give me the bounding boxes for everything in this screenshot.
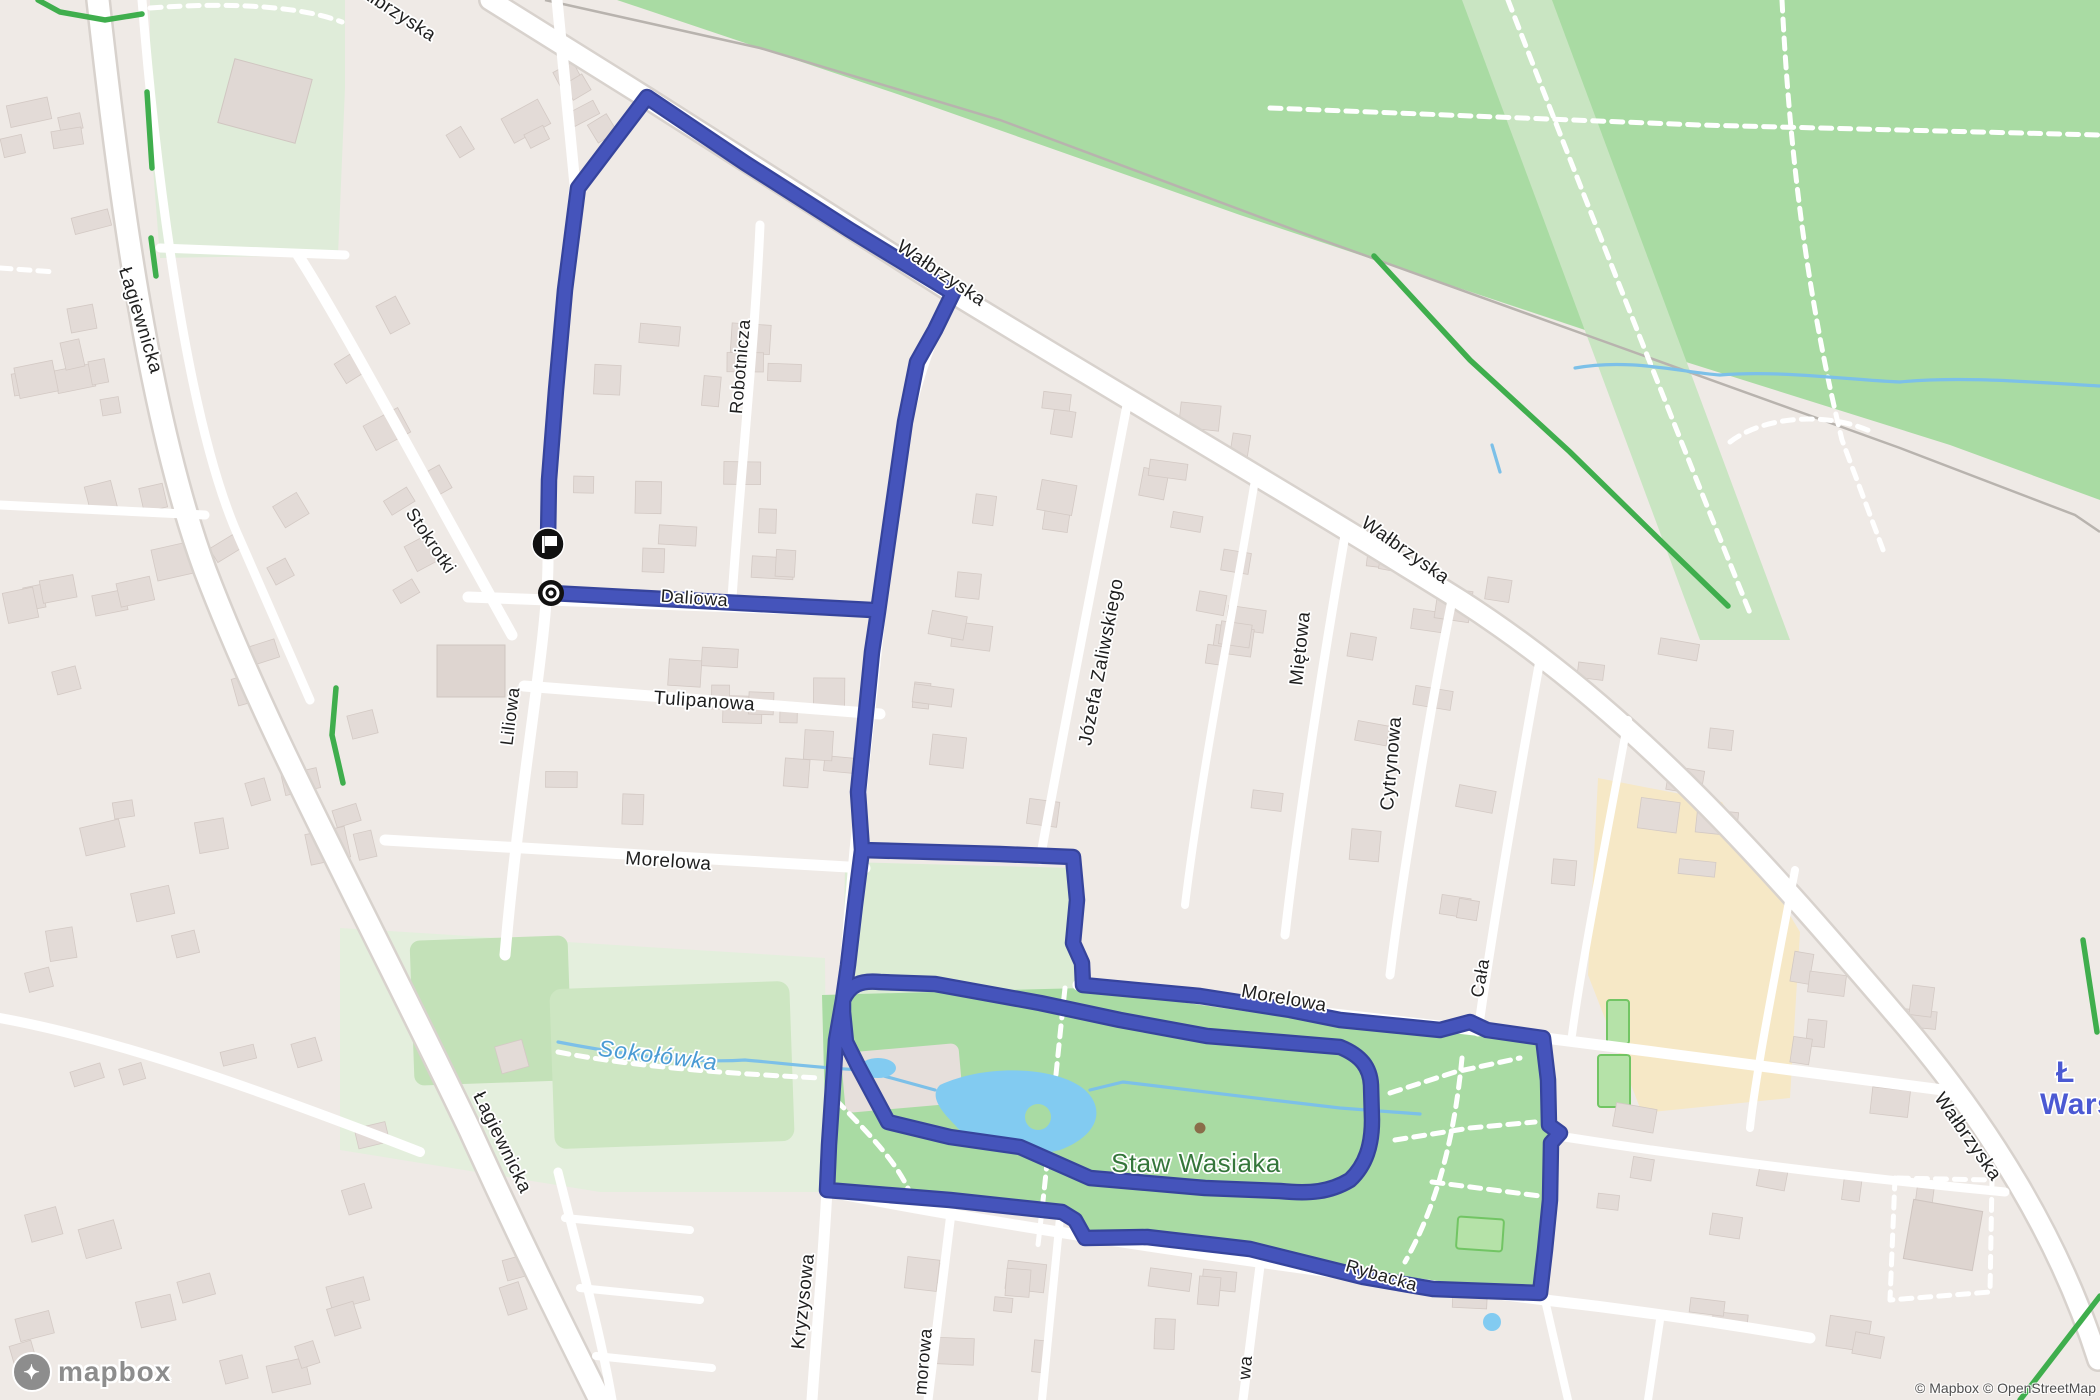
building	[1852, 1332, 1885, 1359]
mapbox-logo-text: mapbox	[58, 1356, 171, 1388]
building	[194, 818, 228, 854]
poi-dot	[1195, 1123, 1206, 1134]
place-label-line1: Ł	[2056, 1056, 2075, 1089]
building	[635, 481, 662, 513]
building	[955, 572, 981, 600]
building	[803, 730, 833, 761]
building	[171, 930, 199, 958]
building	[545, 771, 577, 787]
building	[972, 494, 996, 526]
building	[1005, 1268, 1031, 1297]
building	[593, 364, 621, 395]
building	[1485, 577, 1512, 603]
building	[1196, 591, 1227, 616]
place-label-line2: Wars	[2040, 1088, 2100, 1121]
building	[1551, 859, 1577, 886]
sports-field	[1598, 1055, 1630, 1107]
pond-island	[1025, 1104, 1051, 1130]
park-label-staw-wasiaka: Staw Wasiaka	[1111, 1148, 1281, 1178]
map-canvas[interactable]: Łagiewnicka Łagiewnicka Wałbrzyska Wałbr…	[0, 0, 2100, 1400]
school-building	[437, 645, 505, 697]
building	[783, 758, 810, 788]
building	[45, 927, 77, 962]
building	[1456, 898, 1479, 920]
mapbox-logo-icon: ✦	[12, 1352, 52, 1392]
building	[994, 1297, 1013, 1313]
sports-field	[1456, 1216, 1504, 1251]
building	[1637, 797, 1680, 833]
building	[1808, 971, 1847, 996]
building	[639, 323, 681, 346]
map-svg: Łagiewnicka Łagiewnicka Wałbrzyska Wałbr…	[0, 0, 2100, 1400]
building	[758, 509, 776, 534]
map-attribution[interactable]: © Mapbox © OpenStreetMap	[1915, 1380, 2096, 1396]
building	[573, 476, 593, 493]
building	[1870, 1087, 1911, 1118]
building	[904, 1257, 939, 1292]
building	[767, 363, 801, 381]
building	[2, 587, 39, 623]
sports-field	[1607, 1000, 1629, 1044]
building	[1903, 1199, 1982, 1270]
building	[67, 304, 97, 333]
building	[1347, 633, 1376, 660]
building	[622, 794, 644, 825]
building	[935, 1337, 974, 1365]
building	[1709, 1213, 1742, 1239]
building	[642, 548, 665, 573]
building	[1708, 728, 1733, 751]
building	[658, 525, 697, 546]
building	[1037, 479, 1077, 515]
building	[1597, 1193, 1620, 1210]
building	[1790, 1036, 1813, 1064]
start-marker[interactable]	[538, 580, 564, 606]
building	[1349, 829, 1381, 862]
building	[701, 647, 738, 668]
building	[1251, 790, 1283, 812]
finish-marker[interactable]	[532, 528, 564, 560]
building	[668, 659, 702, 687]
building	[1197, 1276, 1221, 1306]
building	[1630, 1156, 1654, 1181]
building	[100, 397, 121, 416]
building	[112, 800, 134, 819]
building	[1042, 391, 1072, 411]
building	[1909, 985, 1935, 1017]
building	[775, 549, 796, 577]
mapbox-logo[interactable]: ✦ mapbox	[12, 1352, 171, 1392]
building	[1050, 409, 1076, 438]
building	[929, 734, 966, 768]
street-label-fragment: wa	[1234, 1354, 1256, 1381]
small-pond	[1483, 1313, 1501, 1331]
building	[1154, 1318, 1175, 1349]
landcover-layer	[0, 0, 2100, 1400]
building	[701, 376, 721, 407]
